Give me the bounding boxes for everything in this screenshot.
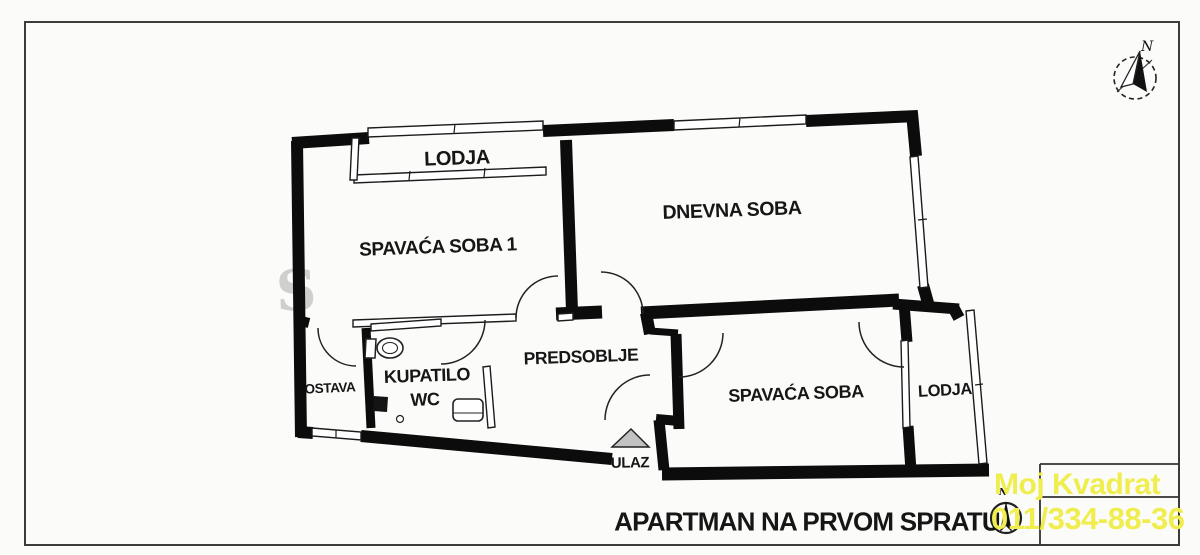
room-label-lodja-right: LODJA xyxy=(918,380,973,402)
compass-north-label: N xyxy=(1141,39,1153,55)
sink-icon xyxy=(453,399,483,421)
watermark-agency-name: Moj Kvadrat xyxy=(994,468,1160,502)
room-label-predsoblje: PREDSOBLJE xyxy=(523,345,638,370)
room-label-dnevna-soba: DNEVNA SOBA xyxy=(662,197,802,225)
room-label-lodja-left: LODJA xyxy=(424,146,491,171)
windows-layer xyxy=(312,115,987,464)
watermark-phone-number: 011/334-88-36 xyxy=(991,501,1184,537)
entrance-label: ULAZ xyxy=(611,454,650,472)
room-label-wc: WC xyxy=(410,389,440,411)
compass-icon xyxy=(1114,51,1156,99)
plan-title: APARTMAN NA PRVOM SPRATU xyxy=(614,507,1000,538)
drawing-frame xyxy=(25,22,1179,545)
pipe-icon xyxy=(373,396,404,423)
floorplan-scan: S xyxy=(0,0,1200,555)
entrance-arrow-icon xyxy=(612,429,649,447)
toilet-icon xyxy=(365,338,403,358)
room-label-ostava: OSTAVA xyxy=(304,379,355,396)
room-label-kupatilo: KUPATILO xyxy=(384,364,471,388)
